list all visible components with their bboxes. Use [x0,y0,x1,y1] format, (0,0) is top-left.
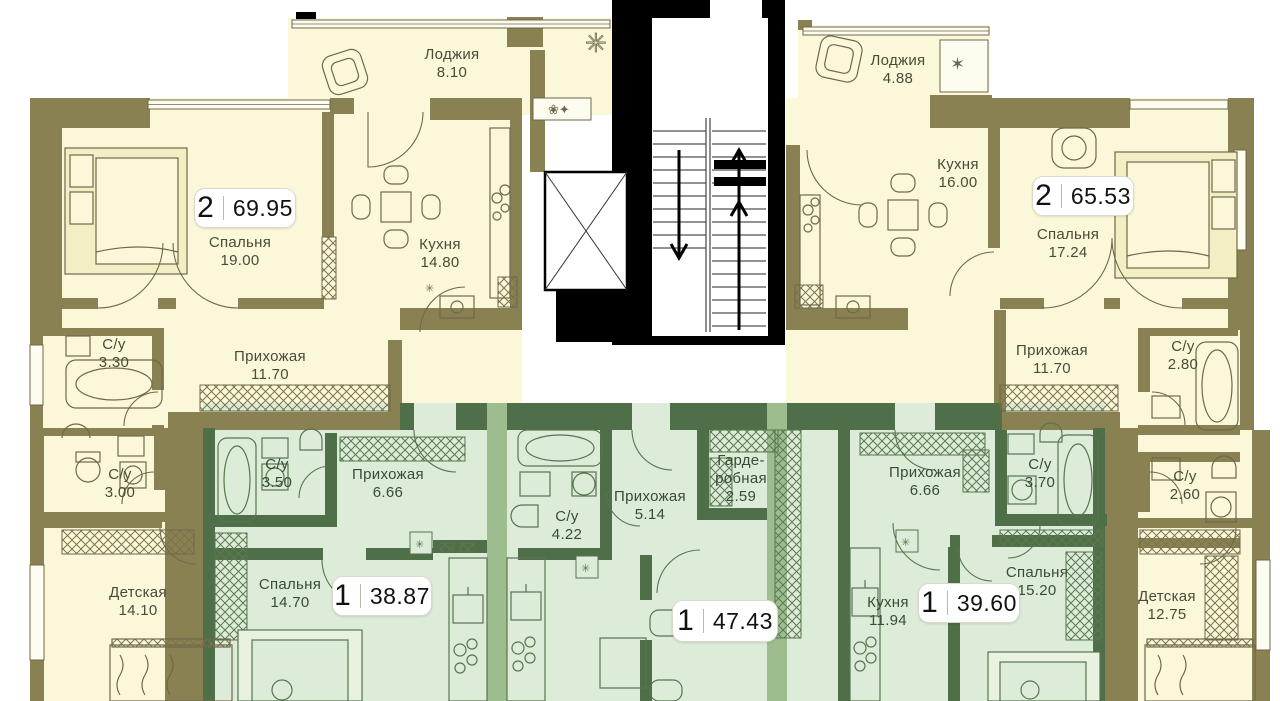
bed-icon [238,630,362,701]
svg-text:✳: ✳ [425,283,434,295]
room-label-kitchen: Кухня11.94 [867,594,909,630]
apartment-badge-39-60[interactable]: 139.60 [918,583,1020,623]
svg-text:✳: ✳ [581,563,590,575]
room-label-hallway: Прихожая11.70 [234,348,306,384]
room-label-bathroom: С/у3.70 [1025,456,1055,492]
bed-icon [1115,152,1237,278]
badge-divider [703,609,704,633]
room-label-bedroom: Спальня17.24 [1037,226,1099,262]
bed-icon [988,652,1100,701]
room-label-bathroom: С/у3.50 [262,456,292,492]
room-label-hallway: Прихожая6.66 [352,466,424,502]
badge-divider [360,584,361,608]
room-label-loggia: Лоджия4.88 [871,52,926,88]
apartment-badge-38-87[interactable]: 138.87 [332,576,432,616]
room-label-kidsroom: Детская12.75 [1138,588,1196,624]
room-label-loggia: Лоджия8.10 [425,46,480,82]
badge-divider [1061,184,1062,208]
apartment-badge-65-53[interactable]: 265.53 [1032,176,1134,216]
room-label-kidsroom: Детская14.10 [109,584,167,620]
room-label-bedroom: Спальня19.00 [209,234,271,270]
room-label-bathroom: С/у4.22 [552,508,582,544]
room-label-kitchen: Кухня14.80 [419,236,461,272]
plant-icon: ✶ [950,54,965,74]
plant-icon: ✳ [585,28,607,58]
room-label-wardrobe: Гарде-робная2.59 [698,452,784,506]
badge-divider [947,591,948,615]
room-label-hallway: Прихожая11.70 [1016,342,1088,378]
room-label-bathroom: С/у2.60 [1170,468,1200,504]
room-label-kitchen: Кухня16.00 [937,156,979,192]
bed-icon [65,148,187,274]
apartment-badge-47-43[interactable]: 147.43 [672,600,778,642]
elevator-icon [545,172,627,290]
room-label-bathroom: С/у3.30 [99,336,129,372]
room-label-bedroom: Спальня14.70 [259,576,321,612]
room-label-hallway: Прихожая5.14 [614,488,686,524]
room-label-bathroom: С/у3.00 [105,466,135,502]
staircase [652,18,768,336]
badge-divider [223,196,224,220]
svg-text:✳: ✳ [901,537,910,549]
floorplan-graphics: ❀✦ ✳ ✶ [0,0,1280,701]
plant-icon: ❀✦ [548,102,570,117]
floorplan: ❀✦ ✳ ✶ [0,0,1280,701]
room-label-bathroom: С/у2.80 [1168,338,1198,374]
svg-text:✳: ✳ [415,539,424,551]
apartment-badge-69-95[interactable]: 269.95 [194,188,296,228]
room-label-hallway: Прихожая6.66 [889,464,961,500]
